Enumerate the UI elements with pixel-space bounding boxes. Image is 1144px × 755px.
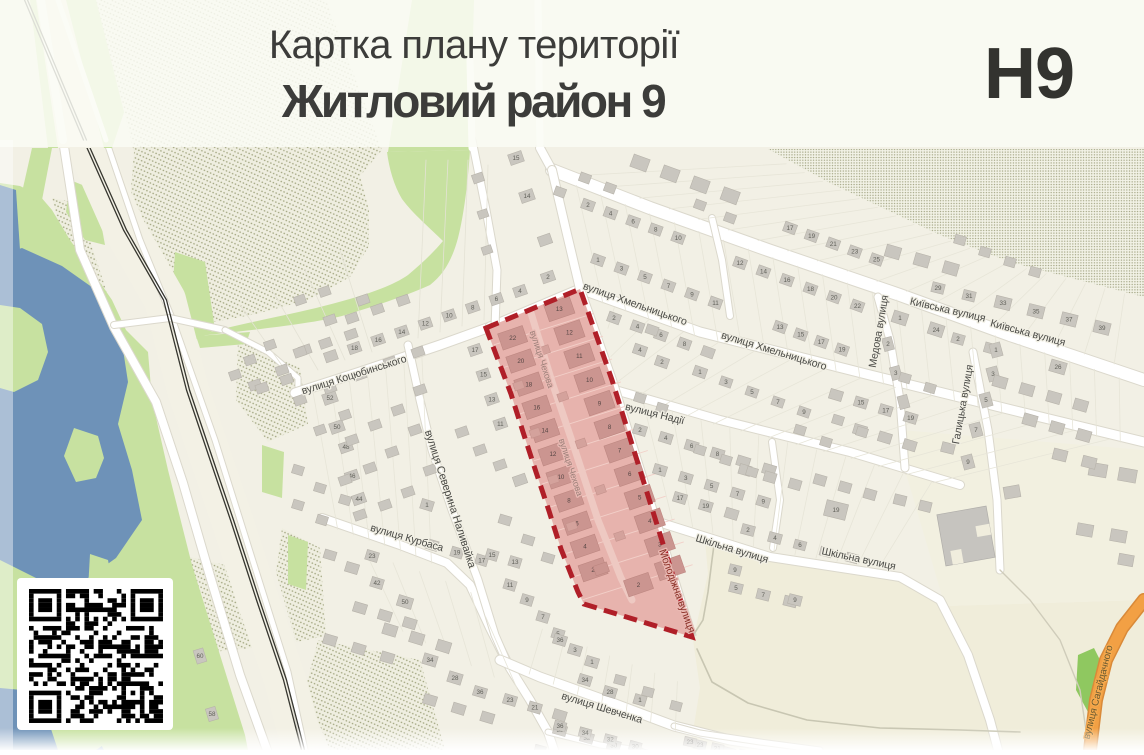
svg-text:12: 12 <box>549 451 556 458</box>
svg-text:1: 1 <box>425 502 429 509</box>
svg-text:9: 9 <box>598 400 602 407</box>
svg-text:1: 1 <box>994 347 998 354</box>
svg-text:33: 33 <box>999 300 1007 307</box>
svg-text:15: 15 <box>857 400 865 407</box>
svg-text:21: 21 <box>531 705 539 712</box>
svg-text:4: 4 <box>648 518 652 525</box>
svg-text:13: 13 <box>776 324 784 331</box>
svg-text:36: 36 <box>476 689 484 696</box>
svg-text:6: 6 <box>659 332 663 339</box>
svg-text:1: 1 <box>698 369 702 376</box>
svg-text:5: 5 <box>984 397 988 404</box>
svg-text:6: 6 <box>690 443 694 450</box>
svg-text:22: 22 <box>509 335 516 342</box>
svg-text:9: 9 <box>762 499 766 506</box>
svg-text:7: 7 <box>776 399 780 406</box>
svg-text:7: 7 <box>761 592 765 599</box>
svg-text:8: 8 <box>654 227 658 234</box>
svg-text:7: 7 <box>667 283 671 290</box>
svg-text:52: 52 <box>326 395 334 402</box>
svg-text:3: 3 <box>573 647 577 654</box>
svg-text:14: 14 <box>541 428 548 435</box>
svg-text:29: 29 <box>934 285 942 292</box>
svg-text:3: 3 <box>894 370 898 377</box>
svg-text:19: 19 <box>832 507 840 514</box>
svg-text:18: 18 <box>807 286 815 293</box>
svg-text:5: 5 <box>734 585 738 592</box>
svg-text:20: 20 <box>517 358 524 365</box>
svg-text:2: 2 <box>660 359 664 366</box>
svg-text:2: 2 <box>586 202 590 209</box>
svg-text:8: 8 <box>683 341 687 348</box>
svg-text:4: 4 <box>773 535 777 542</box>
svg-text:1: 1 <box>596 257 600 264</box>
svg-text:12: 12 <box>422 321 430 328</box>
svg-text:6: 6 <box>631 219 635 226</box>
svg-text:7: 7 <box>618 447 622 454</box>
svg-text:18: 18 <box>351 345 359 352</box>
svg-text:6: 6 <box>628 471 632 478</box>
svg-text:16: 16 <box>783 277 791 284</box>
svg-text:16: 16 <box>533 405 540 412</box>
svg-text:26: 26 <box>1054 364 1062 371</box>
svg-text:8: 8 <box>567 497 571 504</box>
svg-text:1: 1 <box>898 315 902 322</box>
svg-text:13: 13 <box>556 306 563 313</box>
svg-text:15: 15 <box>488 552 496 559</box>
svg-text:4: 4 <box>636 324 640 331</box>
svg-text:42: 42 <box>373 580 381 587</box>
svg-text:Житловий район 9: Житловий район 9 <box>281 75 665 127</box>
svg-text:5: 5 <box>750 389 754 396</box>
svg-text:12: 12 <box>736 260 744 267</box>
svg-text:4: 4 <box>609 210 613 217</box>
svg-text:17: 17 <box>786 225 794 232</box>
svg-text:2: 2 <box>637 582 641 589</box>
svg-text:15: 15 <box>480 372 488 379</box>
svg-text:50: 50 <box>401 599 409 606</box>
svg-text:11: 11 <box>712 300 719 307</box>
svg-text:17: 17 <box>882 407 890 414</box>
svg-text:7: 7 <box>541 614 545 621</box>
svg-text:6: 6 <box>798 542 802 549</box>
svg-text:14: 14 <box>523 193 531 200</box>
svg-text:58: 58 <box>208 711 216 718</box>
svg-text:19: 19 <box>838 347 846 354</box>
svg-text:9: 9 <box>733 567 737 574</box>
svg-text:9: 9 <box>966 459 970 466</box>
svg-text:12: 12 <box>566 330 573 337</box>
svg-text:Картка плану території: Картка плану території <box>269 23 680 67</box>
svg-text:17: 17 <box>471 347 479 354</box>
svg-text:20: 20 <box>830 294 838 301</box>
svg-text:7: 7 <box>736 491 740 498</box>
svg-text:17: 17 <box>478 557 486 564</box>
svg-text:13: 13 <box>488 396 496 403</box>
svg-text:15: 15 <box>512 155 520 162</box>
svg-text:11: 11 <box>507 582 514 589</box>
svg-text:1: 1 <box>638 697 642 704</box>
svg-text:10: 10 <box>675 235 683 242</box>
svg-text:18: 18 <box>525 381 532 388</box>
svg-text:15: 15 <box>797 332 805 339</box>
svg-text:6: 6 <box>495 296 499 303</box>
svg-text:14: 14 <box>398 329 406 336</box>
svg-text:5: 5 <box>710 483 714 490</box>
svg-text:9: 9 <box>690 291 694 298</box>
svg-text:3: 3 <box>620 266 624 273</box>
svg-text:22: 22 <box>854 303 862 310</box>
svg-text:10: 10 <box>586 377 593 384</box>
svg-text:4: 4 <box>583 544 587 551</box>
svg-text:39: 39 <box>1098 325 1106 332</box>
svg-text:2: 2 <box>886 341 890 348</box>
svg-text:50: 50 <box>333 424 341 431</box>
svg-text:9: 9 <box>793 597 797 604</box>
svg-text:28: 28 <box>451 675 459 682</box>
svg-text:13: 13 <box>511 559 519 566</box>
svg-text:23: 23 <box>368 553 376 560</box>
svg-text:23: 23 <box>506 697 514 704</box>
svg-text:21: 21 <box>830 241 838 248</box>
svg-text:19: 19 <box>808 233 816 240</box>
svg-text:2: 2 <box>546 274 550 281</box>
svg-text:44: 44 <box>355 496 363 503</box>
svg-text:4: 4 <box>638 347 642 354</box>
svg-text:34: 34 <box>581 677 589 684</box>
svg-text:14: 14 <box>760 269 768 276</box>
svg-text:60: 60 <box>196 653 204 660</box>
svg-text:17: 17 <box>818 339 826 346</box>
svg-text:25: 25 <box>873 257 881 264</box>
svg-text:16: 16 <box>375 337 383 344</box>
svg-text:11: 11 <box>576 353 583 360</box>
svg-text:3: 3 <box>684 475 688 482</box>
svg-text:7: 7 <box>974 427 978 434</box>
svg-text:8: 8 <box>471 304 475 311</box>
svg-text:4: 4 <box>518 288 522 295</box>
svg-text:19: 19 <box>453 550 461 557</box>
svg-text:31: 31 <box>965 293 973 300</box>
svg-text:28: 28 <box>606 689 614 696</box>
svg-text:2: 2 <box>746 527 750 534</box>
svg-text:2: 2 <box>638 427 642 434</box>
svg-text:37: 37 <box>1065 317 1073 324</box>
svg-text:3: 3 <box>724 379 728 386</box>
svg-text:10: 10 <box>446 313 454 320</box>
svg-text:8: 8 <box>608 424 612 431</box>
svg-text:34: 34 <box>426 657 434 664</box>
svg-text:4: 4 <box>664 435 668 442</box>
svg-text:9: 9 <box>525 597 529 604</box>
svg-text:35: 35 <box>1032 308 1040 315</box>
svg-text:17: 17 <box>676 495 684 502</box>
svg-text:1: 1 <box>590 659 594 666</box>
svg-text:19: 19 <box>907 415 915 422</box>
svg-text:5: 5 <box>643 274 647 281</box>
svg-text:2: 2 <box>612 315 616 322</box>
svg-text:9: 9 <box>802 409 806 416</box>
svg-text:11: 11 <box>497 421 504 428</box>
svg-text:36: 36 <box>556 637 564 644</box>
svg-text:24: 24 <box>933 327 941 334</box>
svg-text:2: 2 <box>956 336 960 343</box>
svg-text:8: 8 <box>716 451 720 458</box>
svg-text:1: 1 <box>658 467 662 474</box>
svg-text:19: 19 <box>702 503 710 510</box>
svg-text:5: 5 <box>638 494 642 501</box>
svg-text:23: 23 <box>851 249 859 256</box>
svg-text:Н9: Н9 <box>984 34 1074 114</box>
